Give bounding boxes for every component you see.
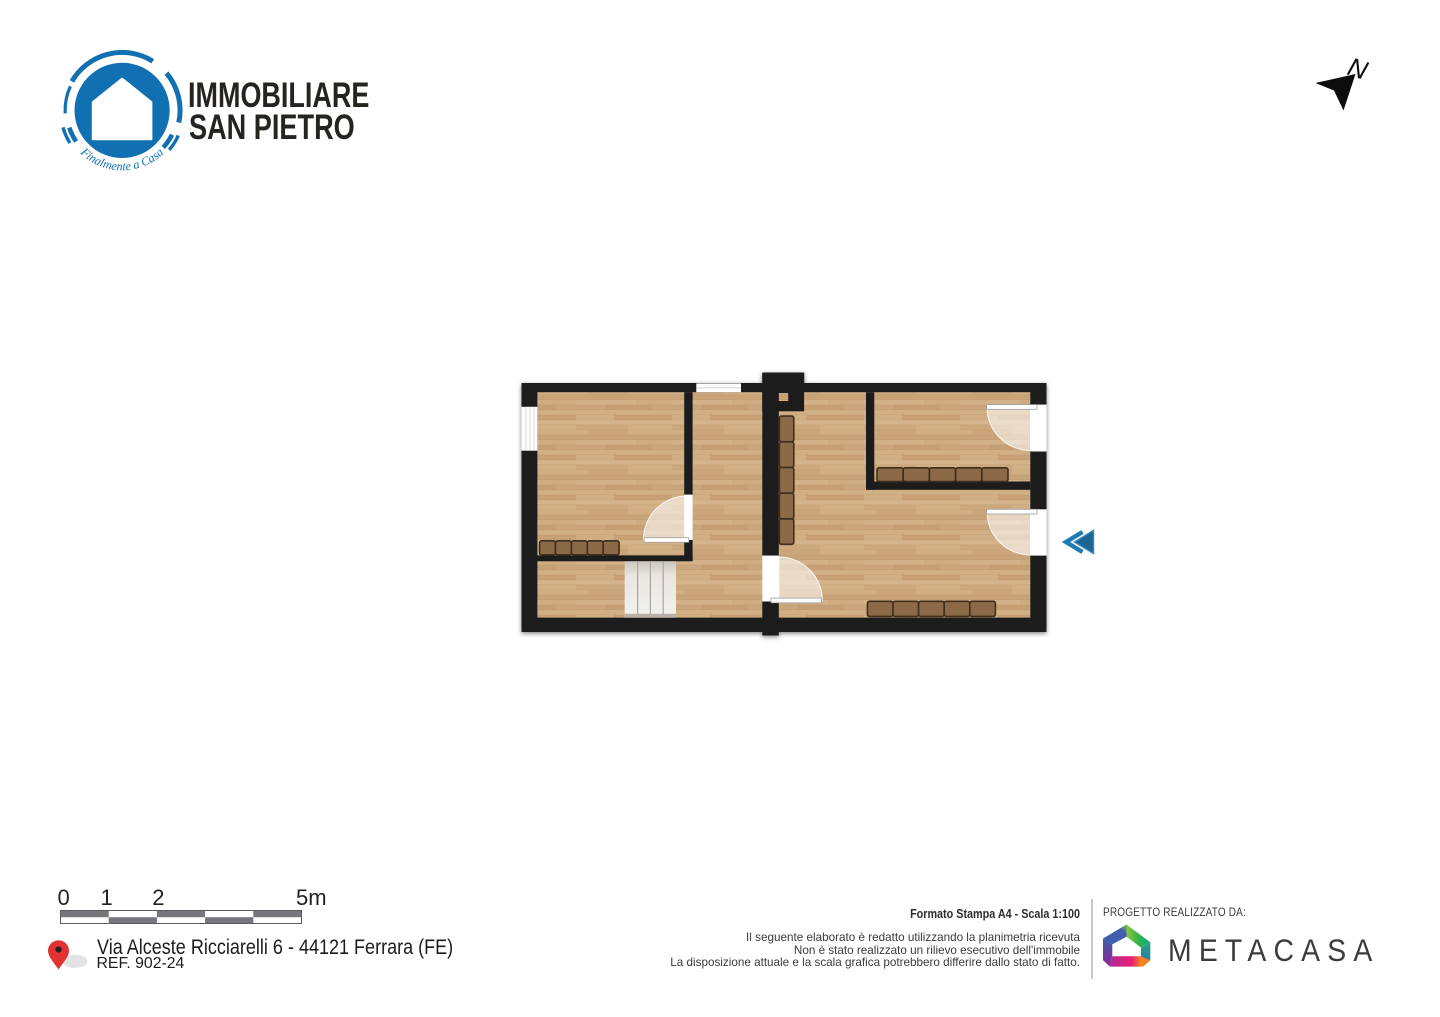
svg-text:N: N <box>1344 51 1371 85</box>
